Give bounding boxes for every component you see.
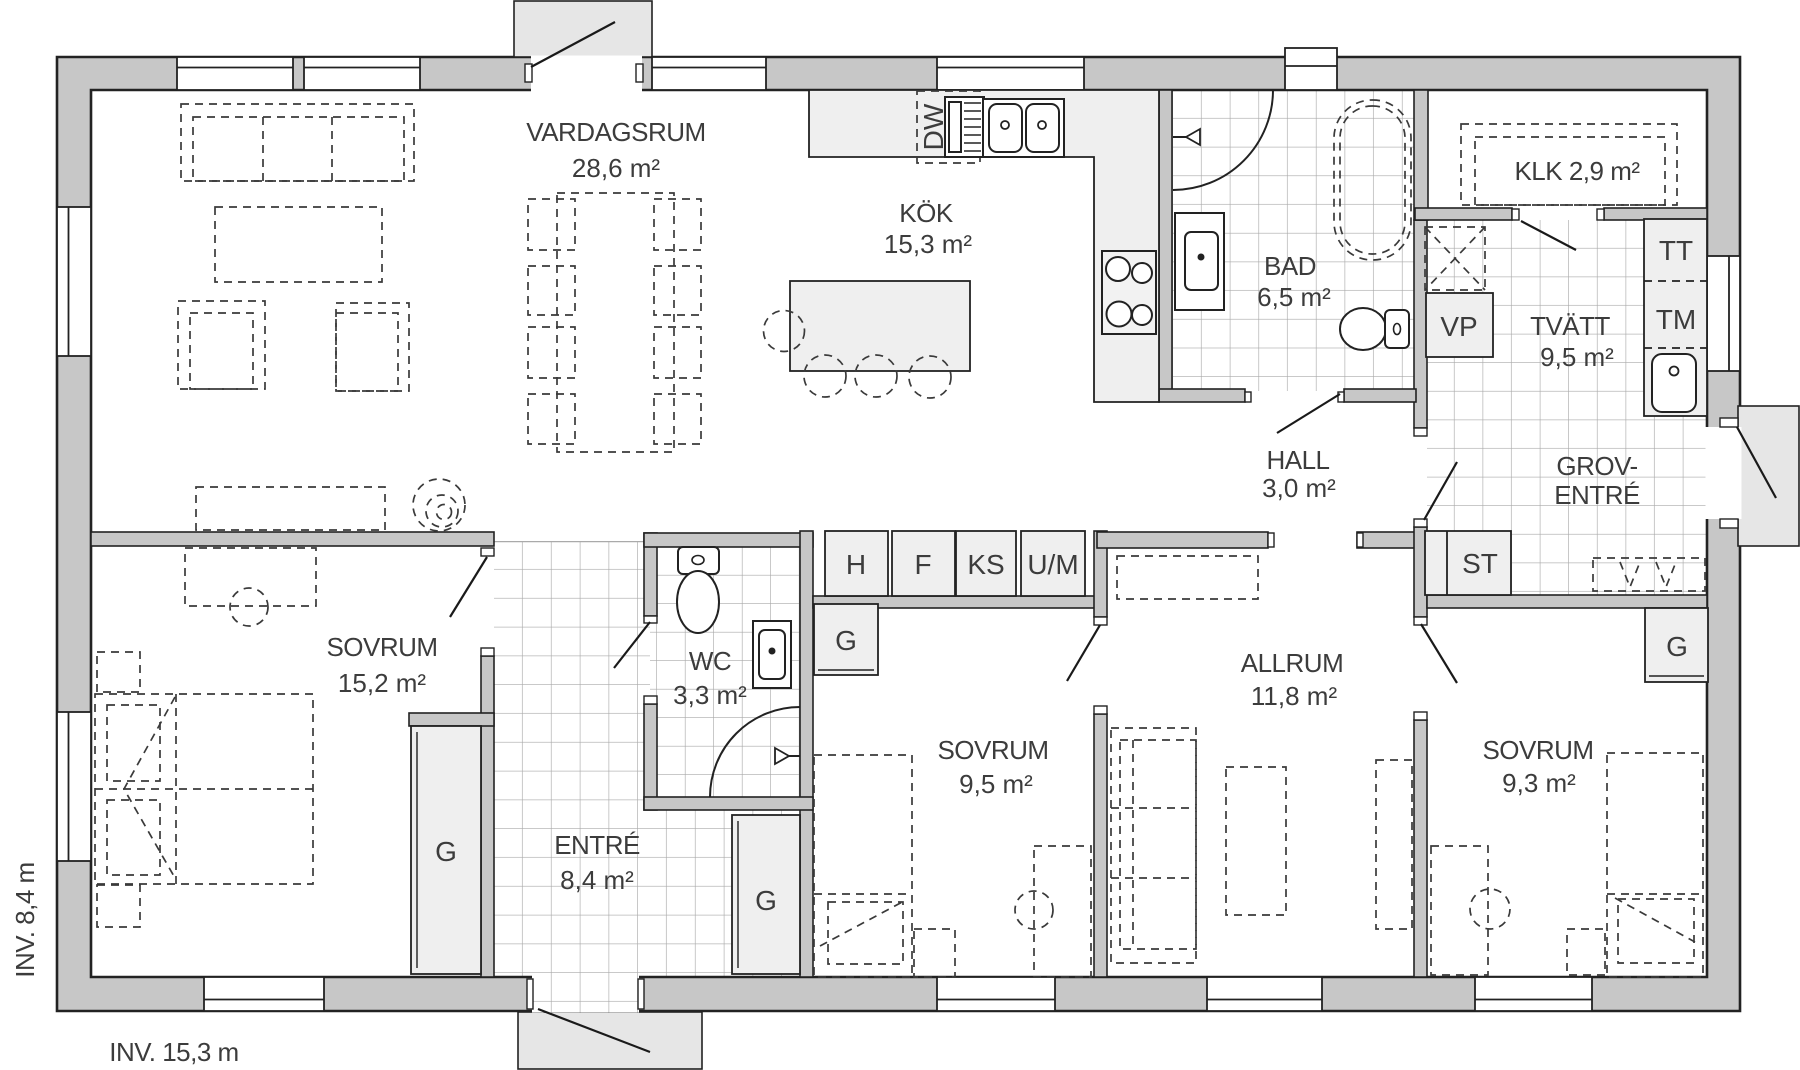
svg-text:U/M: U/M (1027, 549, 1078, 580)
svg-text:HALL: HALL (1266, 445, 1329, 475)
svg-text:H: H (846, 549, 866, 580)
svg-text:TT: TT (1659, 235, 1693, 266)
svg-text:9,3 m²: 9,3 m² (1502, 768, 1576, 798)
svg-text:DW: DW (918, 103, 949, 150)
svg-text:KLK 2,9 m²: KLK 2,9 m² (1514, 156, 1640, 186)
svg-text:WC: WC (689, 646, 731, 676)
svg-text:3,3 m²: 3,3 m² (673, 680, 747, 710)
svg-text:8,4 m²: 8,4 m² (560, 865, 634, 895)
svg-text:28,6 m²: 28,6 m² (572, 153, 660, 183)
svg-text:VP: VP (1440, 311, 1477, 342)
svg-text:3,0 m²: 3,0 m² (1262, 473, 1336, 503)
svg-text:15,3 m²: 15,3 m² (884, 229, 972, 259)
svg-text:6,5 m²: 6,5 m² (1257, 282, 1331, 312)
svg-text:TVÄTT: TVÄTT (1530, 311, 1610, 341)
svg-text:BAD: BAD (1264, 251, 1316, 281)
svg-text:ENTRÉ: ENTRÉ (1554, 480, 1640, 510)
svg-text:SOVRUM: SOVRUM (326, 632, 437, 662)
svg-text:9,5 m²: 9,5 m² (959, 769, 1033, 799)
svg-text:TM: TM (1656, 304, 1696, 335)
svg-text:G: G (1666, 631, 1688, 662)
svg-text:KÖK: KÖK (899, 198, 954, 228)
svg-text:G: G (435, 836, 457, 867)
svg-text:VARDAGSRUM: VARDAGSRUM (526, 117, 705, 147)
svg-text:KS: KS (967, 549, 1004, 580)
svg-text:F: F (914, 549, 931, 580)
svg-text:G: G (835, 625, 857, 656)
svg-text:9,5 m²: 9,5 m² (1540, 342, 1614, 372)
svg-text:SOVRUM: SOVRUM (937, 735, 1048, 765)
svg-text:INV. 15,3 m: INV. 15,3 m (109, 1037, 238, 1067)
svg-text:G: G (755, 885, 777, 916)
svg-text:GROV-: GROV- (1556, 451, 1637, 481)
svg-text:ALLRUM: ALLRUM (1241, 648, 1343, 678)
svg-text:ST: ST (1462, 548, 1498, 579)
svg-text:SOVRUM: SOVRUM (1482, 735, 1593, 765)
svg-text:15,2 m²: 15,2 m² (338, 668, 426, 698)
svg-text:ENTRÉ: ENTRÉ (554, 830, 640, 860)
svg-text:11,8 m²: 11,8 m² (1251, 681, 1338, 711)
svg-text:INV. 8,4 m: INV. 8,4 m (10, 862, 40, 977)
